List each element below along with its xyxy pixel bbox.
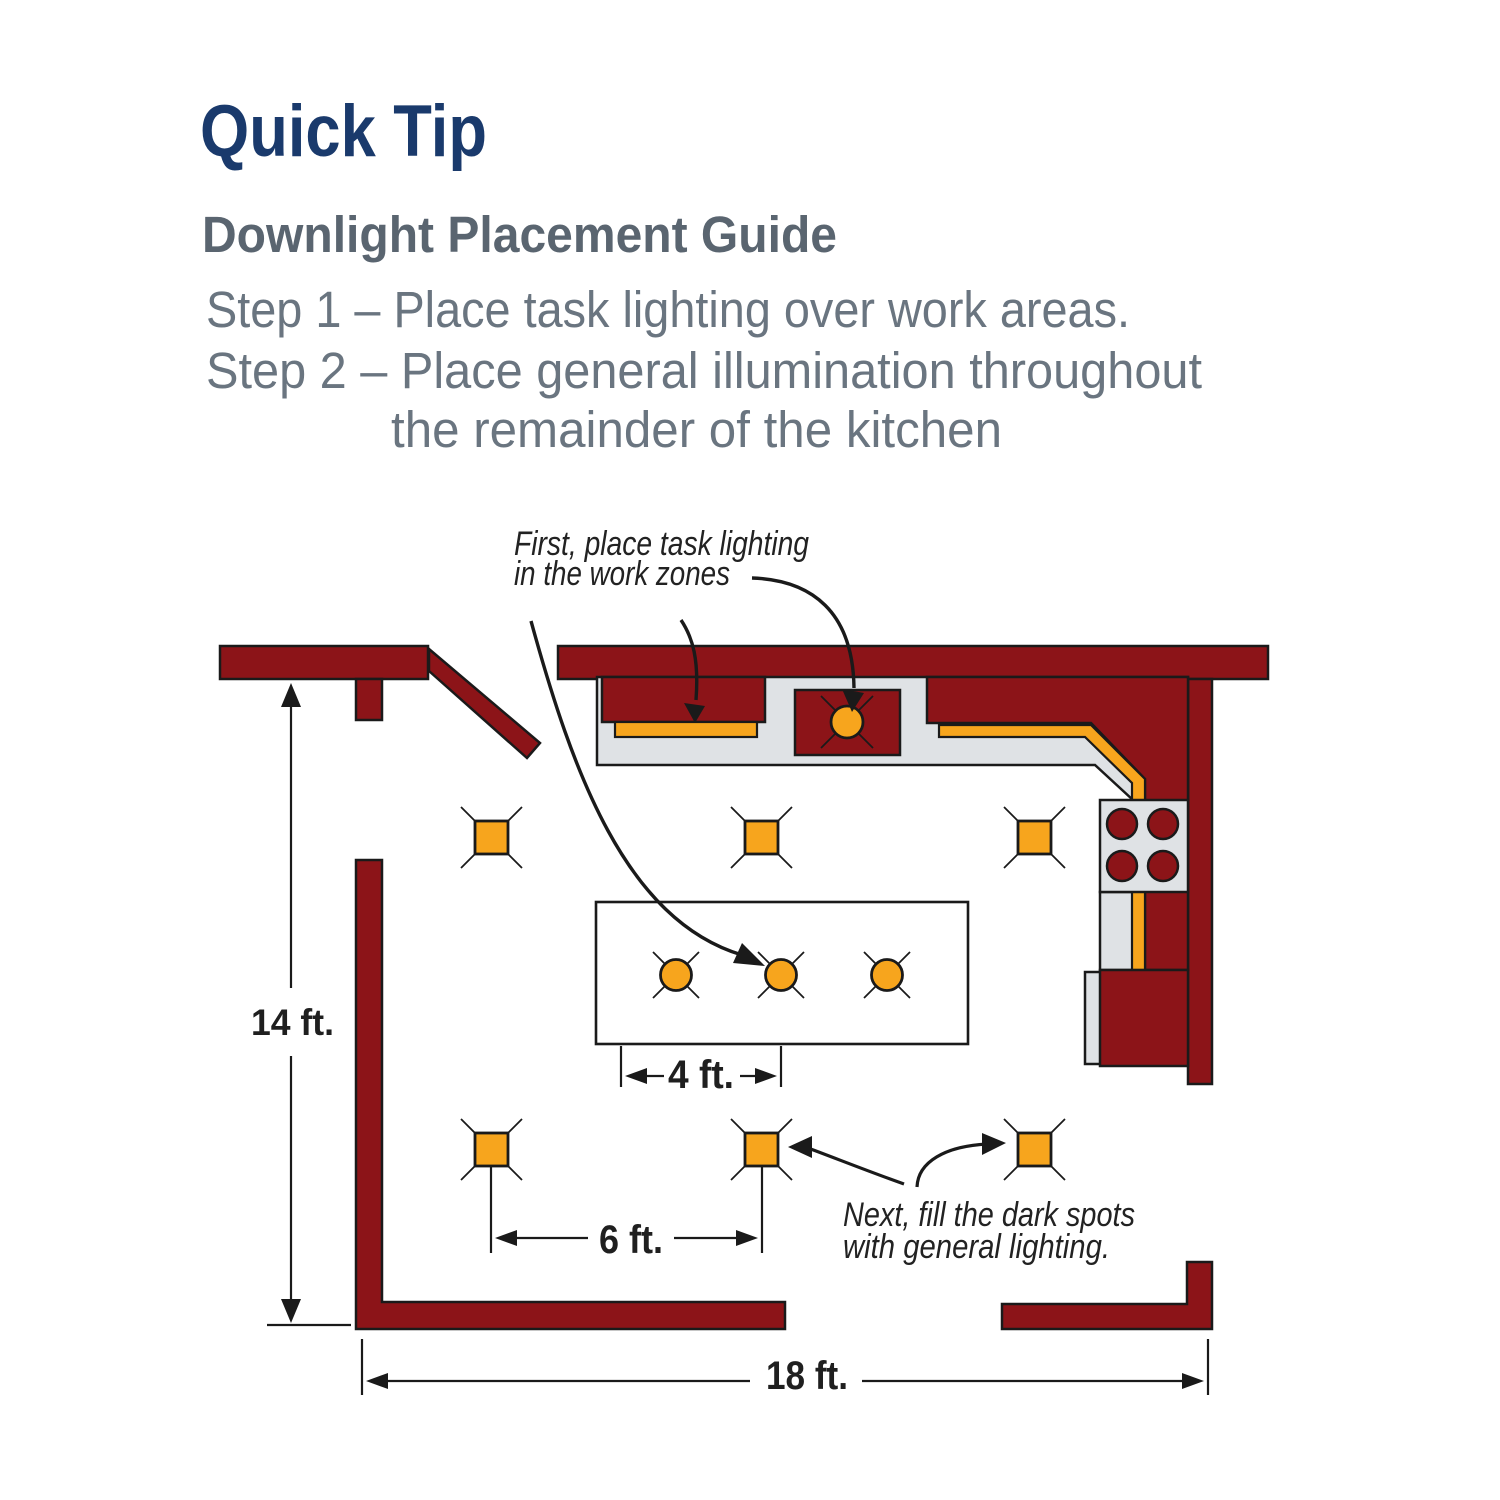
svg-text:with general lighting.: with general lighting. (843, 1228, 1110, 1266)
svg-text:14 ft.: 14 ft. (251, 1002, 334, 1043)
svg-text:Step 2 – Place general illumin: Step 2 – Place general illumination thro… (206, 342, 1202, 399)
svg-text:6 ft.: 6 ft. (599, 1218, 663, 1262)
svg-text:the remainder of the kitchen: the remainder of the kitchen (391, 401, 1002, 458)
svg-text:Step 1 – Place task lighting o: Step 1 – Place task lighting over work a… (206, 281, 1130, 338)
svg-text:Downlight Placement Guide: Downlight Placement Guide (202, 206, 837, 263)
svg-text:18 ft.: 18 ft. (766, 1354, 848, 1398)
svg-text:4 ft.: 4 ft. (668, 1053, 734, 1097)
svg-text:Quick Tip: Quick Tip (200, 91, 487, 172)
svg-text:in the work zones: in the work zones (514, 555, 730, 593)
